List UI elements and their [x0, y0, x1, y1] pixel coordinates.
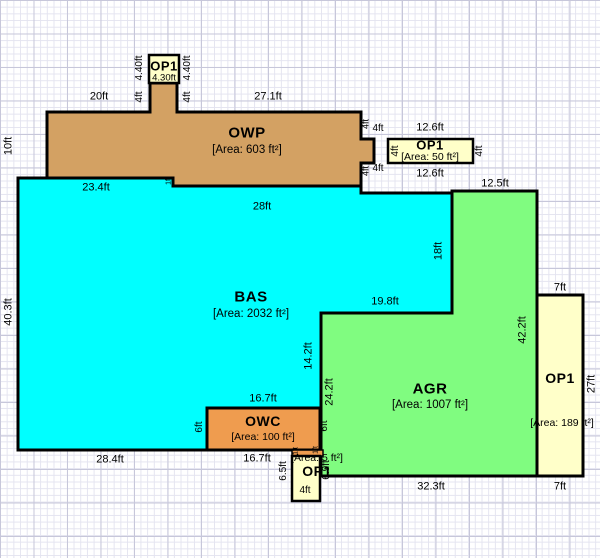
dim-bas-right: 18ft: [434, 242, 445, 260]
dim-op1-east-bottom: 7ft: [554, 482, 566, 493]
dim-arm-bot-h: 4ft: [372, 164, 383, 174]
op1-ne-area-label: [Area: 50 ft²]: [401, 151, 459, 163]
dim-op1-south-left: 6.5ft: [279, 461, 289, 480]
dim-op1-ne-top: 12.6ft: [416, 123, 444, 134]
dim-bas-inner-right: 14.2ft: [304, 342, 315, 370]
dim-owp-top-left: 20ft: [90, 92, 108, 103]
dim-owc-left: 6ft: [195, 421, 205, 432]
dim-bas-left: 40.3ft: [4, 298, 15, 326]
floorplan-canvas: OWP [Area: 603 ft²] BAS [Area: 2032 ft²]…: [0, 0, 600, 558]
dim-stem-left: 4ft: [135, 91, 145, 102]
dim-op1-top-side-right: 4.40ft: [183, 55, 193, 80]
dim-op1-east-top: 7ft: [554, 283, 566, 294]
owp-title: OWP: [228, 125, 265, 142]
dim-bas-top-left: 23.4ft: [82, 183, 110, 194]
dim-agr-step-top: 19.8ft: [371, 297, 399, 308]
dim-agr-top: 12.5ft: [481, 179, 509, 190]
dim-op1-ne-left: 4ft: [391, 145, 401, 156]
dim-op1-ne-bottom: 12.6ft: [416, 169, 444, 180]
dim-agr-bottom: 32.3ft: [417, 482, 445, 493]
dim-op1-ne-right: 4ft: [475, 145, 485, 156]
dim-bas-top-mid: 28ft: [253, 202, 271, 213]
op1-east-title: OP1: [545, 370, 575, 386]
dim-owc-right: 6ft: [320, 420, 330, 431]
dim-arm-top-v: 4ft: [362, 119, 371, 129]
bas-title: BAS: [234, 289, 267, 306]
dim-op1-top-side-left: 4.40ft: [135, 55, 145, 80]
agr-area-label: [Area: 1007 ft²]: [392, 399, 468, 411]
dim-stem-right: 4ft: [183, 91, 193, 102]
op1-top-title: OP1: [150, 59, 178, 74]
dim-arm-top-h: 4ft: [372, 124, 383, 134]
dim-agr-right: 42.2ft: [518, 316, 529, 344]
dim-op1-east-right: 27ft: [587, 375, 598, 393]
dim-op1-south-right: 6.9ft: [322, 460, 332, 479]
op1-east-area-label: [Area: 189 ft²]: [530, 417, 594, 429]
dim-sliver-left: 1ft: [293, 447, 300, 455]
dim-owp-left: 10ft: [4, 137, 15, 155]
owp-area-label: [Area: 603 ft²]: [212, 144, 282, 156]
op1-top-width-label: 4.30ft: [152, 73, 176, 84]
agr-title: AGR: [413, 381, 448, 398]
dim-owc-top: 16.7ft: [249, 394, 277, 405]
dim-arm-bot-v: 4ft: [362, 166, 371, 176]
bas-area-label: [Area: 2032 ft²]: [213, 308, 289, 320]
owc-title: OWC: [245, 413, 281, 429]
dim-agr-left: 24.2ft: [325, 378, 336, 406]
dim-sliver-right: 1ft: [313, 446, 320, 454]
floorplan-shapes: [0, 0, 600, 558]
dim-owp-top-right: 27.1ft: [254, 92, 282, 103]
owc-area-label: [Area: 100 ft²]: [231, 431, 295, 443]
dim-step: 1ft: [166, 177, 173, 185]
dim-bas-bottom: 28.4ft: [96, 455, 124, 466]
dim-owc-bottom: 16.7ft: [243, 454, 271, 465]
dim-op1-south-bottom: 4ft: [299, 486, 310, 496]
